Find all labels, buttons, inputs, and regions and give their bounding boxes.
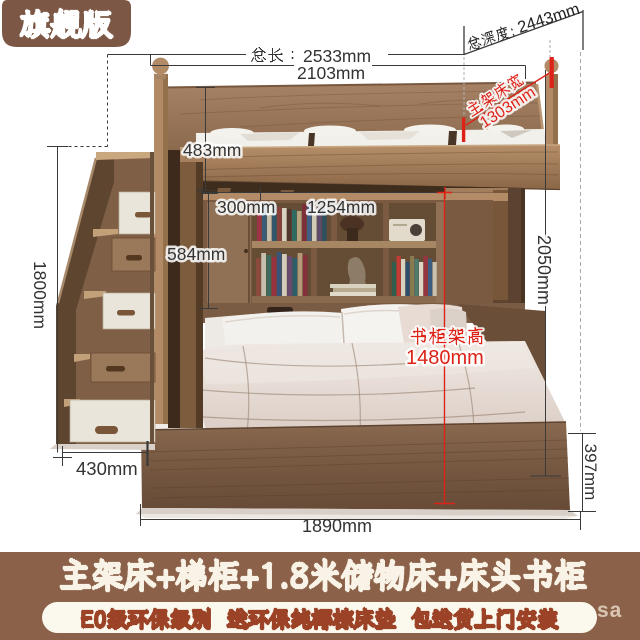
svg-text:430mm: 430mm bbox=[76, 458, 138, 479]
svg-text:1254mm: 1254mm bbox=[307, 197, 375, 217]
svg-text:1890mm: 1890mm bbox=[302, 516, 372, 536]
svg-text:483mm: 483mm bbox=[183, 140, 241, 160]
svg-text:1800mm: 1800mm bbox=[30, 261, 50, 329]
svg-text:584mm: 584mm bbox=[167, 244, 225, 264]
svg-text:2050mm: 2050mm bbox=[534, 235, 554, 305]
svg-text:300mm: 300mm bbox=[217, 197, 275, 217]
svg-text:sa: sa bbox=[597, 599, 622, 622]
svg-text:1480mm: 1480mm bbox=[406, 347, 484, 369]
svg-text:2103mm: 2103mm bbox=[297, 63, 365, 83]
svg-text:397mm: 397mm bbox=[581, 444, 600, 501]
